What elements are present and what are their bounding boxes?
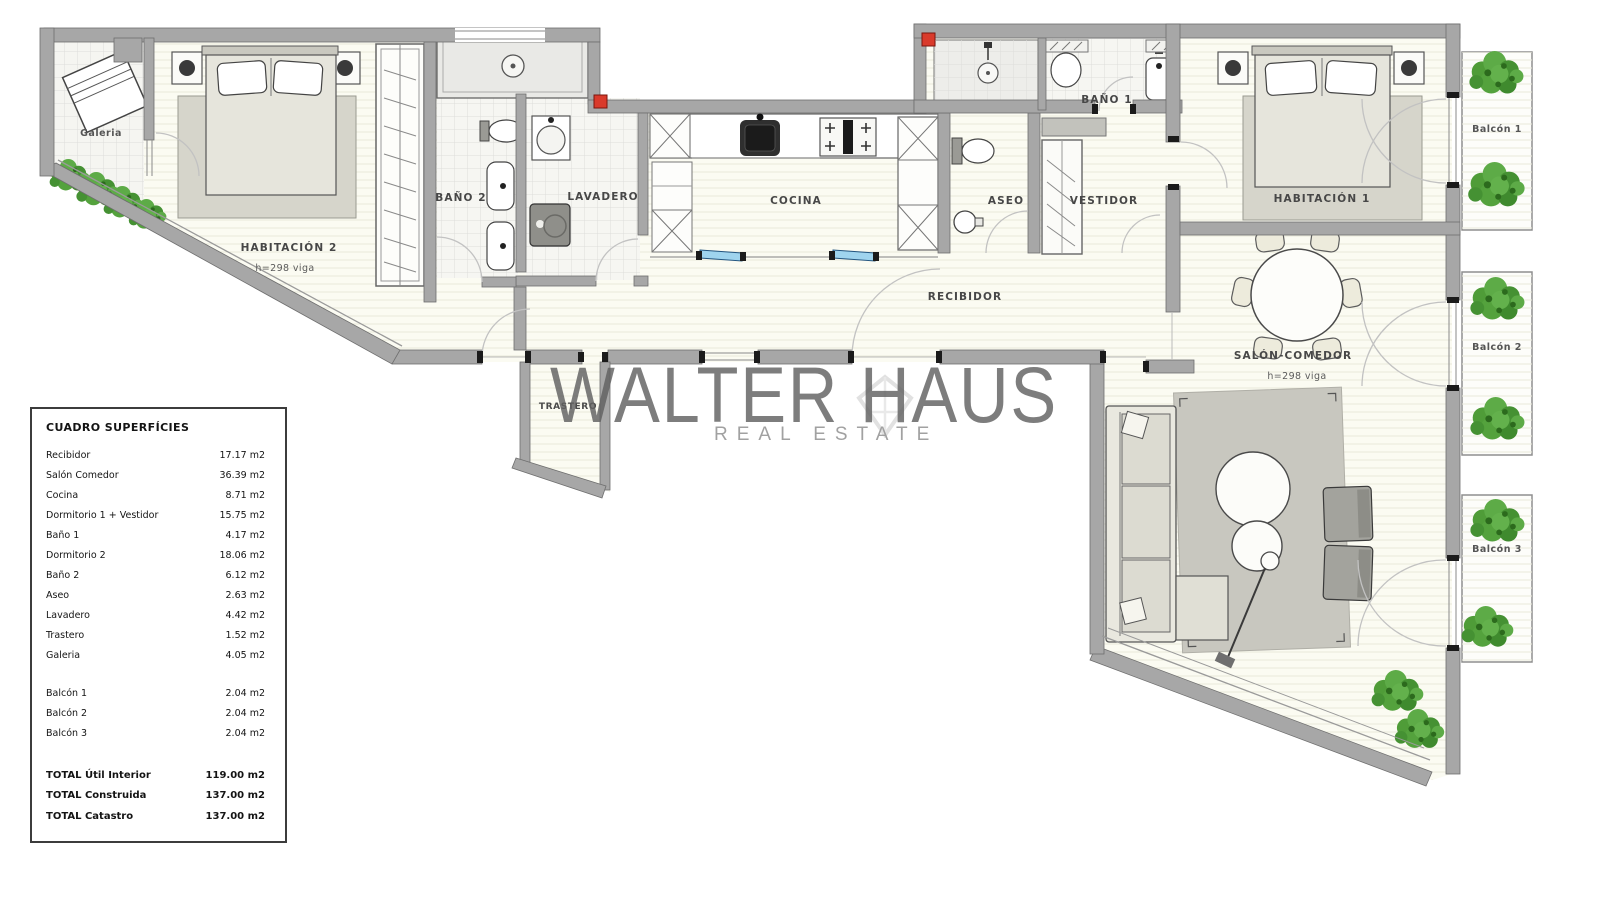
row-value: 137.00 m2 bbox=[206, 790, 265, 801]
row-value: 4.05 m2 bbox=[226, 650, 265, 661]
row-value: 6.12 m2 bbox=[226, 570, 265, 581]
row-label: Lavadero bbox=[46, 610, 90, 621]
living-area bbox=[1106, 387, 1373, 668]
row-value: 15.75 m2 bbox=[219, 510, 265, 521]
row-value: 8.71 m2 bbox=[226, 490, 265, 501]
label-habitacion1: HABITACIÓN 1 bbox=[1274, 192, 1371, 205]
table-row: Balcón 22.04 m2 bbox=[46, 703, 265, 723]
bed-habitacion2 bbox=[172, 46, 360, 218]
row-value: 36.39 m2 bbox=[219, 470, 265, 481]
row-value: 17.17 m2 bbox=[219, 450, 265, 461]
table-row: Balcón 32.04 m2 bbox=[46, 723, 265, 743]
row-label: Recibidor bbox=[46, 450, 90, 461]
table-row: Baño 26.12 m2 bbox=[46, 565, 265, 585]
watermark-subtitle-text: REAL ESTATE bbox=[714, 424, 938, 446]
label-galeria: Galeria bbox=[80, 128, 122, 139]
row-label: Dormitorio 1 + Vestidor bbox=[46, 510, 158, 521]
row-value: 2.63 m2 bbox=[226, 590, 265, 601]
label-aseo: ASEO bbox=[988, 195, 1024, 207]
row-label: Baño 1 bbox=[46, 530, 79, 541]
surfaces-table-title: CUADRO SUPERFÍCIES bbox=[46, 421, 265, 434]
table-row: Dormitorio 218.06 m2 bbox=[46, 545, 265, 565]
table-row-total: TOTAL Construida137.00 m2 bbox=[46, 786, 265, 807]
row-label: Salón Comedor bbox=[46, 470, 119, 481]
label-balcon1: Balcón 1 bbox=[1472, 124, 1522, 135]
row-value: 4.17 m2 bbox=[226, 530, 265, 541]
table-row: Dormitorio 1 + Vestidor15.75 m2 bbox=[46, 505, 265, 525]
row-value: 4.42 m2 bbox=[226, 610, 265, 621]
row-label: Baño 2 bbox=[46, 570, 79, 581]
row-label: Dormitorio 2 bbox=[46, 550, 106, 561]
row-label: Balcón 3 bbox=[46, 728, 87, 739]
label-lavadero: LAVADERO bbox=[567, 191, 638, 203]
row-label: Aseo bbox=[46, 590, 69, 601]
floor-plan-page: Galeria HABITACIÓN 2 h=298 viga BAÑO 2 L… bbox=[0, 0, 1600, 905]
label-cocina: COCINA bbox=[770, 195, 822, 207]
row-value: 2.04 m2 bbox=[226, 688, 265, 699]
table-row: Baño 14.17 m2 bbox=[46, 525, 265, 545]
row-label: Balcón 1 bbox=[46, 688, 87, 699]
row-value: 1.52 m2 bbox=[226, 630, 265, 641]
table-row: Trastero1.52 m2 bbox=[46, 625, 265, 645]
balconies bbox=[1462, 52, 1532, 662]
row-label: TOTAL Construida bbox=[46, 790, 146, 801]
label-salon: SALÓN-COMEDOR bbox=[1234, 349, 1352, 362]
row-value: 119.00 m2 bbox=[206, 770, 265, 781]
table-row-total: TOTAL Útil Interior119.00 m2 bbox=[46, 765, 265, 786]
table-row: Cocina8.71 m2 bbox=[46, 485, 265, 505]
row-label: Galeria bbox=[46, 650, 80, 661]
label-salon-beam: h=298 viga bbox=[1267, 371, 1326, 382]
riser-markers bbox=[594, 33, 935, 108]
row-label: Trastero bbox=[46, 630, 84, 641]
table-row: Aseo2.63 m2 bbox=[46, 585, 265, 605]
label-recibidor: RECIBIDOR bbox=[928, 291, 1002, 303]
label-habitacion2-beam: h=298 viga bbox=[255, 263, 314, 274]
row-value: 2.04 m2 bbox=[226, 728, 265, 739]
row-value: 137.00 m2 bbox=[206, 811, 265, 822]
label-balcon2: Balcón 2 bbox=[1472, 342, 1522, 353]
row-value: 18.06 m2 bbox=[219, 550, 265, 561]
table-row: Galeria4.05 m2 bbox=[46, 645, 265, 665]
table-row: Recibidor17.17 m2 bbox=[46, 445, 265, 465]
label-habitacion2: HABITACIÓN 2 bbox=[241, 241, 338, 254]
table-row-total: TOTAL Catastro137.00 m2 bbox=[46, 806, 265, 827]
row-label: TOTAL Catastro bbox=[46, 811, 133, 822]
table-row: Lavadero4.42 m2 bbox=[46, 605, 265, 625]
row-value: 2.04 m2 bbox=[226, 708, 265, 719]
label-vestidor: VESTIDOR bbox=[1070, 195, 1138, 207]
row-label: Balcón 2 bbox=[46, 708, 87, 719]
label-bano1: BAÑO 1 bbox=[1081, 93, 1132, 106]
wardrobe-habitacion2 bbox=[376, 44, 424, 286]
surfaces-table: CUADRO SUPERFÍCIES Recibidor17.17 m2 Sal… bbox=[30, 407, 287, 843]
label-bano2: BAÑO 2 bbox=[435, 191, 486, 204]
row-label: TOTAL Útil Interior bbox=[46, 770, 151, 781]
label-balcon3: Balcón 3 bbox=[1472, 544, 1522, 555]
table-row: Salón Comedor36.39 m2 bbox=[46, 465, 265, 485]
table-row: Balcón 12.04 m2 bbox=[46, 683, 265, 703]
row-label: Cocina bbox=[46, 490, 78, 501]
